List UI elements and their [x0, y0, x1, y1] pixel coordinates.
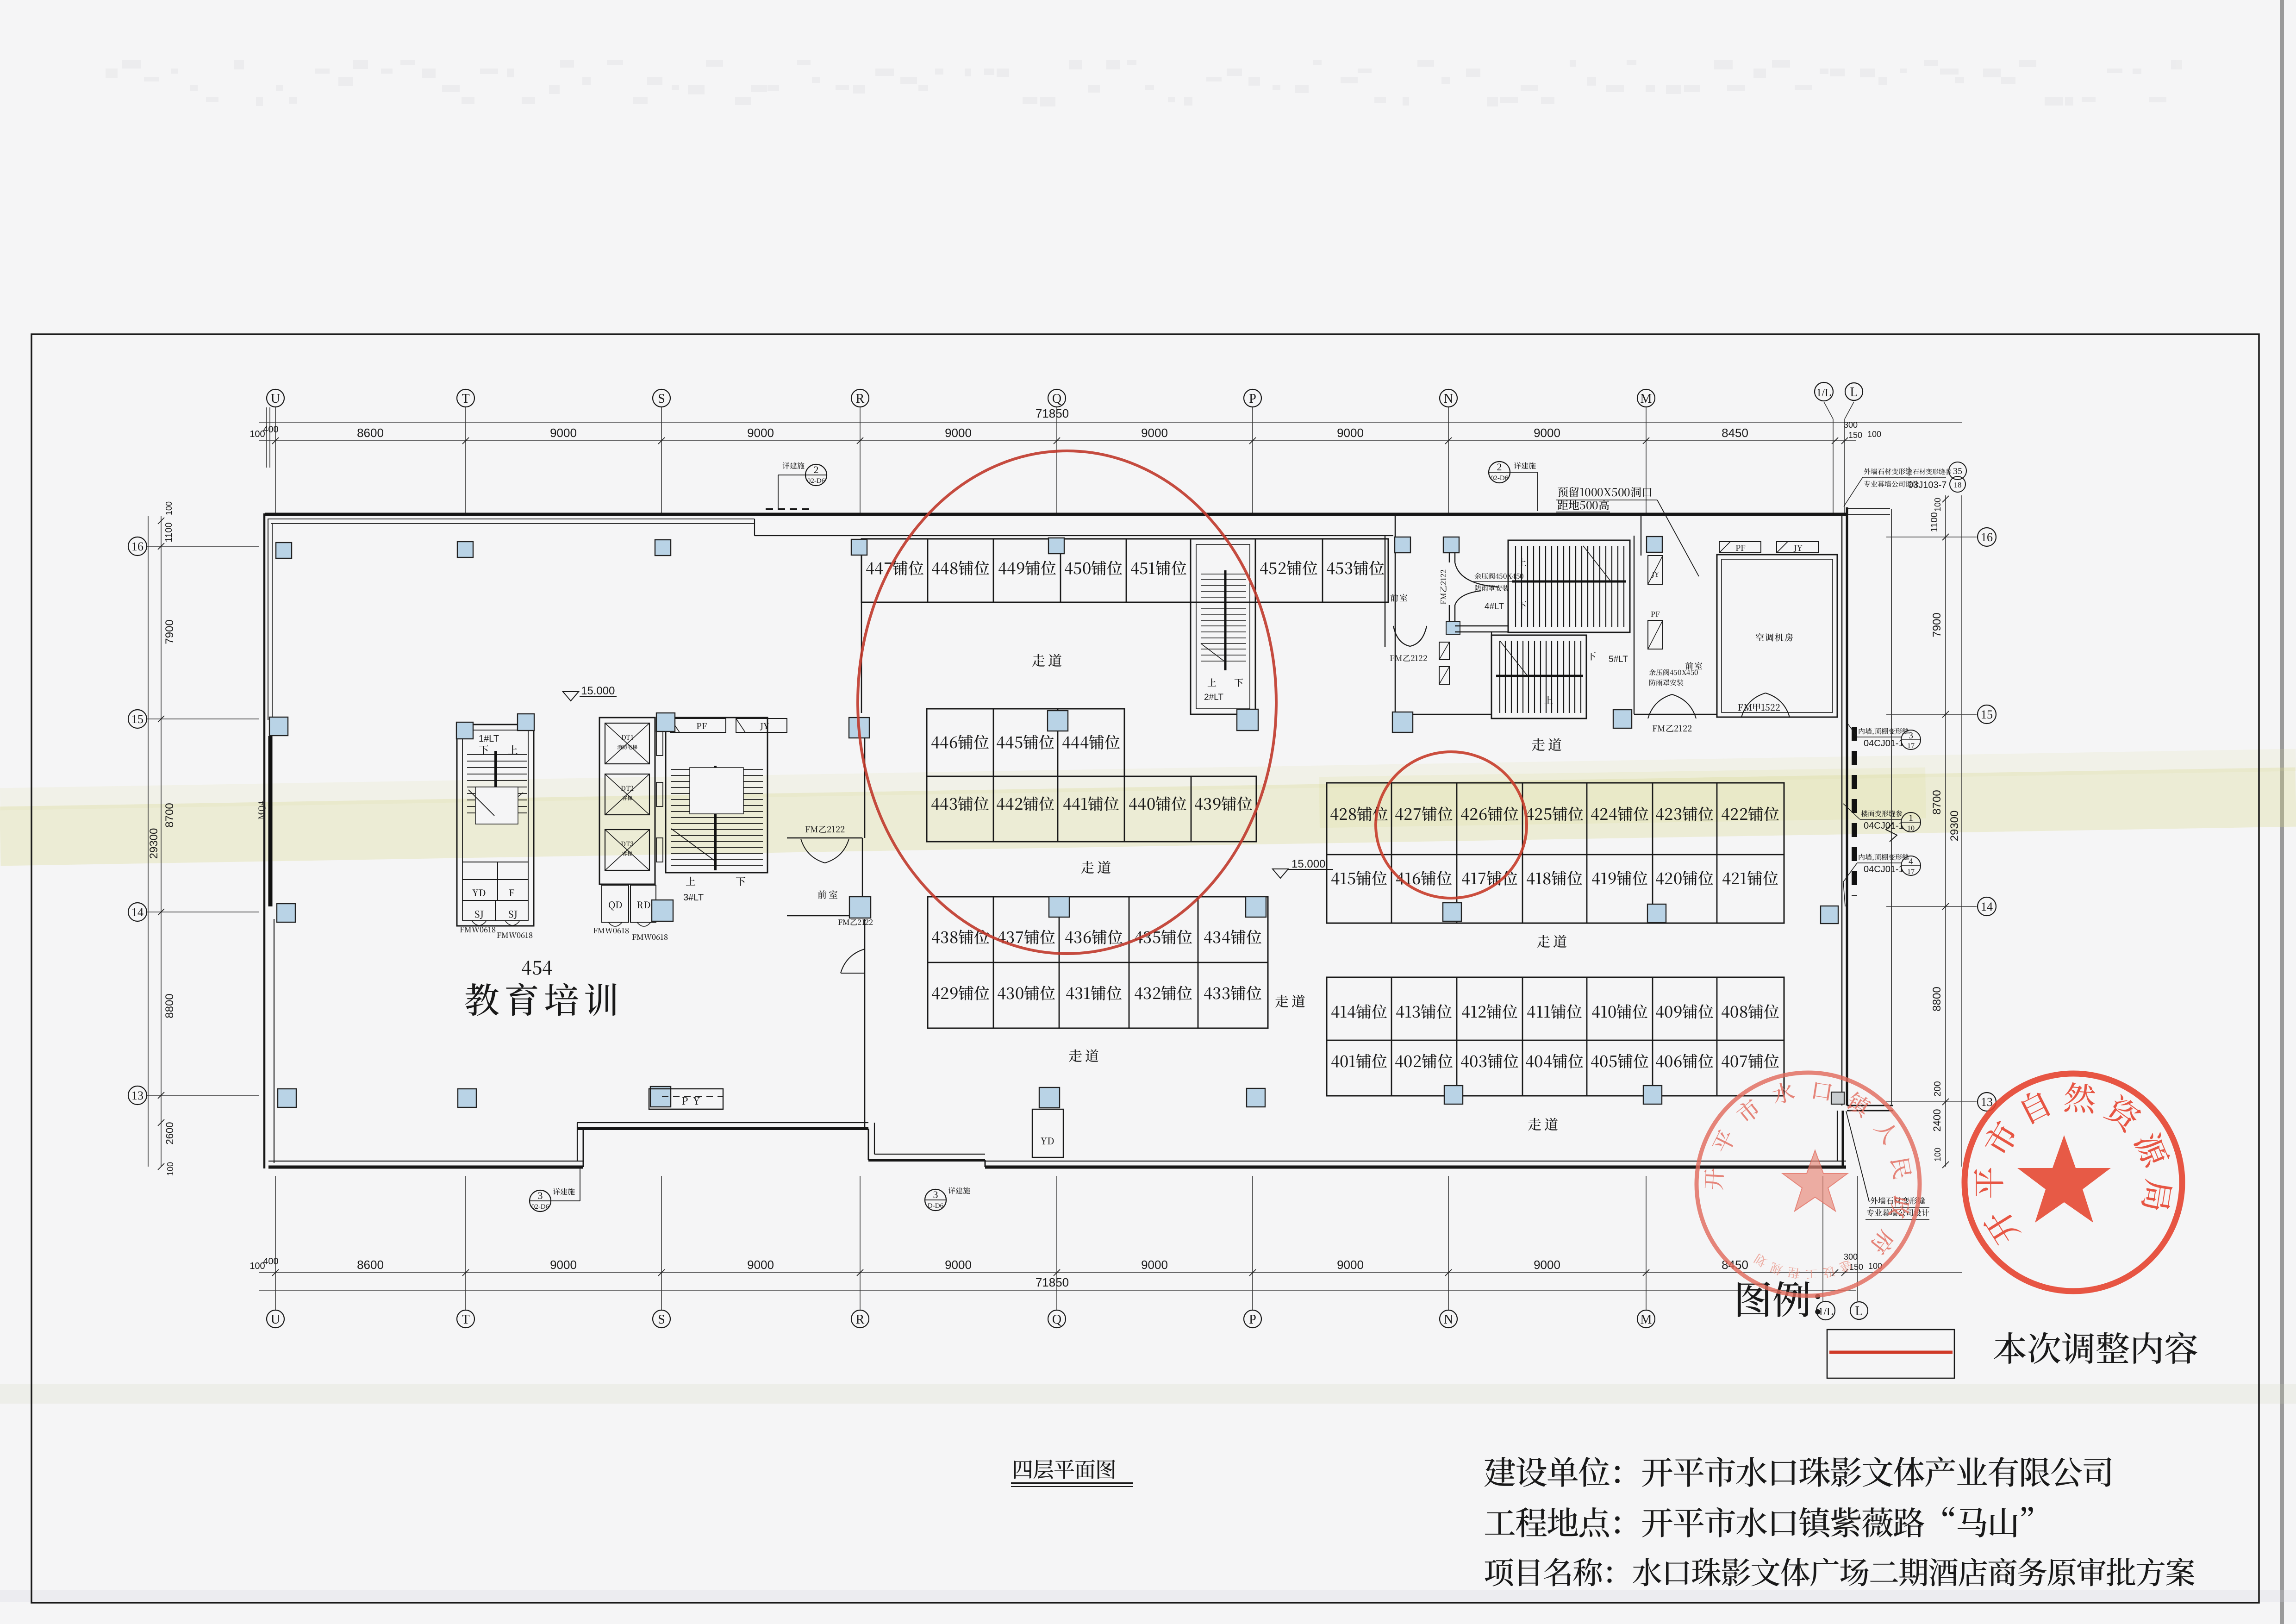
svg-text:150: 150	[1848, 431, 1862, 440]
svg-text:2: 2	[814, 464, 819, 475]
svg-text:9000: 9000	[945, 426, 972, 440]
svg-text:S: S	[658, 392, 665, 406]
svg-text:3#LT: 3#LT	[683, 893, 704, 903]
svg-text:8600: 8600	[357, 1258, 384, 1272]
svg-text:400: 400	[263, 425, 278, 435]
svg-text:13: 13	[1981, 1095, 1993, 1109]
svg-text:29300: 29300	[1948, 811, 1961, 842]
svg-text:2600: 2600	[164, 1122, 175, 1145]
svg-text:8700: 8700	[163, 803, 176, 827]
svg-text:15.000: 15.000	[1291, 858, 1325, 870]
svg-text:04CJ01-1: 04CJ01-1	[1864, 864, 1904, 874]
svg-text:Q: Q	[1052, 392, 1061, 406]
svg-text:15: 15	[131, 712, 143, 726]
svg-text:300: 300	[1844, 1252, 1858, 1262]
svg-text:100: 100	[1933, 1148, 1942, 1162]
svg-text:U: U	[271, 392, 280, 406]
svg-text:D-D6: D-D6	[928, 1202, 944, 1210]
svg-text:8450: 8450	[1722, 426, 1748, 440]
svg-text:15: 15	[1981, 708, 1993, 721]
svg-text:100: 100	[1933, 498, 1942, 512]
svg-text:9000: 9000	[747, 1258, 774, 1272]
svg-text:16: 16	[131, 540, 143, 553]
svg-text:10: 10	[1907, 824, 1915, 832]
svg-text:9000: 9000	[1141, 426, 1168, 440]
svg-text:17: 17	[1907, 742, 1915, 750]
svg-text:5#LT: 5#LT	[1609, 655, 1628, 664]
svg-text:18: 18	[1954, 481, 1962, 489]
svg-text:T: T	[462, 392, 469, 406]
svg-text:71850: 71850	[1036, 406, 1069, 420]
svg-text:8700: 8700	[1931, 790, 1943, 814]
svg-text:300: 300	[1844, 420, 1858, 430]
svg-text:U: U	[271, 1312, 280, 1327]
svg-text:200: 200	[1933, 1081, 1943, 1096]
svg-text:03J103-7: 03J103-7	[1908, 480, 1947, 490]
svg-text:100: 100	[1867, 430, 1881, 439]
svg-text:1#LT: 1#LT	[479, 734, 499, 744]
svg-text:1100: 1100	[164, 522, 174, 542]
svg-text:8600: 8600	[357, 426, 384, 440]
svg-text:7900: 7900	[163, 619, 176, 644]
svg-text:8800: 8800	[1931, 987, 1943, 1011]
svg-text:100: 100	[166, 1162, 175, 1176]
svg-text:R: R	[856, 1312, 865, 1327]
svg-text:35: 35	[1953, 466, 1962, 476]
svg-text:9000: 9000	[1534, 1258, 1560, 1272]
svg-text:M: M	[1641, 392, 1652, 406]
svg-text:14: 14	[1981, 900, 1993, 913]
svg-text:29300: 29300	[148, 828, 160, 859]
svg-text:R: R	[856, 392, 865, 406]
svg-text:4: 4	[1909, 856, 1913, 867]
svg-text:2400: 2400	[1931, 1109, 1943, 1132]
svg-text:16: 16	[1981, 531, 1993, 544]
svg-text:M: M	[1641, 1312, 1652, 1327]
svg-text:9000: 9000	[550, 1258, 577, 1272]
svg-text:9000: 9000	[1141, 1258, 1168, 1272]
svg-text:9000: 9000	[550, 426, 577, 440]
svg-text:L: L	[1850, 385, 1858, 400]
svg-text:3: 3	[1909, 731, 1913, 741]
svg-text:N: N	[1444, 1312, 1453, 1327]
svg-text:9000: 9000	[747, 426, 774, 440]
svg-text:100: 100	[164, 501, 174, 515]
svg-text:7900: 7900	[1931, 612, 1943, 637]
svg-text:400: 400	[263, 1256, 278, 1267]
svg-text:P: P	[1249, 1312, 1256, 1327]
svg-text:L: L	[1855, 1304, 1863, 1318]
svg-text:1100: 1100	[1929, 512, 1940, 532]
svg-text:2: 2	[1497, 461, 1502, 473]
svg-text:9000: 9000	[1337, 426, 1364, 440]
svg-text:04CJ01-1: 04CJ01-1	[1864, 821, 1904, 831]
svg-text:02-D6: 02-D6	[807, 477, 825, 485]
svg-text:9000: 9000	[1534, 426, 1560, 440]
svg-text:4#LT: 4#LT	[1485, 602, 1504, 612]
svg-text:14: 14	[131, 906, 143, 919]
svg-text:1: 1	[1909, 813, 1913, 823]
svg-text:N: N	[1444, 392, 1453, 406]
svg-text:2#LT: 2#LT	[1204, 693, 1223, 702]
svg-text:15.000: 15.000	[581, 685, 615, 697]
svg-text:9000: 9000	[945, 1258, 972, 1272]
svg-text:17: 17	[1907, 868, 1915, 876]
svg-text:71850: 71850	[1036, 1275, 1069, 1289]
svg-text:13: 13	[131, 1089, 143, 1102]
svg-text:3: 3	[933, 1189, 938, 1200]
svg-text:S: S	[658, 1312, 665, 1327]
svg-text:9000: 9000	[1337, 1258, 1364, 1272]
svg-text:04CJ01-1: 04CJ01-1	[1864, 738, 1904, 749]
svg-text:02-D6: 02-D6	[531, 1203, 549, 1211]
svg-text:1/L: 1/L	[1816, 387, 1831, 399]
svg-text:T: T	[462, 1312, 469, 1327]
svg-text:02-D6: 02-D6	[1491, 475, 1509, 482]
svg-text:Q: Q	[1052, 1312, 1061, 1327]
svg-text:P: P	[1249, 392, 1256, 406]
svg-text:3: 3	[538, 1190, 543, 1201]
svg-text:150: 150	[1849, 1262, 1863, 1272]
svg-text:8800: 8800	[163, 993, 176, 1018]
